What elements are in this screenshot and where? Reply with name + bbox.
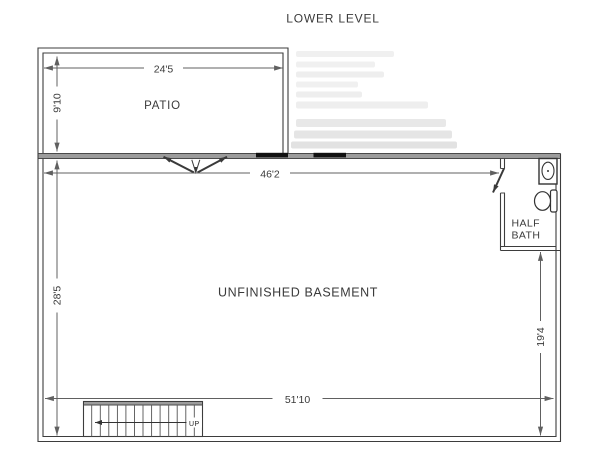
floor-plan-canvas: LOWER LEVEL: [0, 0, 600, 463]
svg-text:28'5: 28'5: [52, 286, 64, 306]
basement-label: UNFINISHED BASEMENT: [218, 286, 378, 300]
svg-text:9'10: 9'10: [52, 93, 64, 113]
door-swing-icon: [493, 169, 504, 193]
dimension-basement-width-top: 46'2: [44, 167, 499, 181]
toilet-icon: [535, 190, 558, 212]
window-segment: [256, 153, 288, 158]
half-bath-label-line2: BATH: [512, 230, 541, 242]
patio-label: PATIO: [144, 100, 181, 112]
dimension-patio-depth: 9'10: [51, 57, 64, 152]
svg-text:24'5: 24'5: [154, 63, 174, 75]
double-door-icon: [164, 157, 228, 173]
page-title: LOWER LEVEL: [286, 12, 380, 26]
staircase: UP: [84, 402, 203, 437]
window-segment: [314, 153, 347, 158]
watermark-artifact: [291, 51, 457, 149]
stairs-direction-label: UP: [189, 421, 200, 428]
dimension-patio-width: 24'5: [44, 62, 283, 76]
half-bath-label-line1: HALF: [512, 218, 540, 230]
dimension-basement-depth-left: 28'5: [51, 161, 64, 436]
dimension-basement-depth-right: 19'4: [534, 252, 547, 436]
sink-icon: [539, 159, 557, 185]
floor-plan-page: LOWER LEVEL: [0, 0, 600, 463]
half-bath-room: HALF BATH: [493, 159, 561, 251]
basement-top-wall: [38, 153, 561, 159]
svg-text:46'2: 46'2: [260, 168, 280, 180]
svg-text:19'4: 19'4: [535, 327, 547, 347]
svg-text:51'10: 51'10: [285, 394, 311, 406]
